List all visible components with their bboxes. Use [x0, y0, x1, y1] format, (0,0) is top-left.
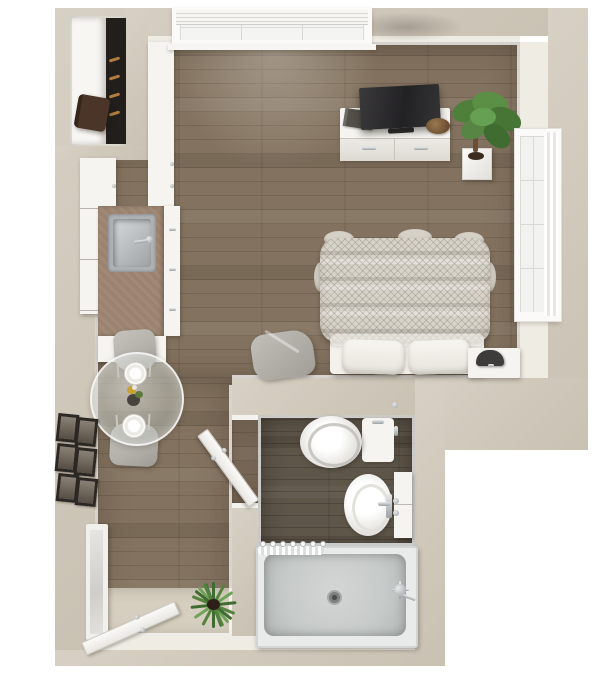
mirror-glass: [90, 530, 103, 634]
lamp-base: [488, 364, 494, 367]
curtain-ring: [280, 541, 286, 547]
drawer-handle: [414, 147, 428, 150]
bathroom-door-jamb: [232, 415, 258, 420]
pillow: [407, 339, 470, 375]
drawer-seam: [394, 138, 395, 160]
plant-soil: [468, 152, 484, 160]
wall-art-frame: [75, 417, 99, 447]
north-window-blinds: [176, 10, 368, 25]
curtain-ring: [270, 541, 276, 547]
curtain-ring: [290, 541, 296, 547]
shower-curtain-bunched: [258, 546, 324, 555]
north-window-sill: [168, 44, 376, 50]
curtain-ring: [310, 541, 316, 547]
base-cabinet-front: [164, 206, 180, 336]
east-window-glass: [520, 136, 546, 312]
drawer-handle: [169, 268, 176, 271]
bathroom-west-wall: [232, 508, 258, 636]
bathroom-east-wall: [415, 378, 445, 666]
gray-lounge-pouf: [249, 328, 317, 382]
bathroom-door-jamb: [232, 503, 258, 508]
curtain-ring: [320, 541, 326, 547]
cabinet-knob: [170, 162, 174, 166]
cabinet-knob: [112, 184, 116, 188]
floorplan-render: [0, 0, 600, 683]
faucet-handle: [393, 510, 399, 516]
decor-bowl: [426, 118, 450, 134]
towel-hook: [392, 402, 398, 408]
south-wall: [55, 650, 445, 666]
bathroom-north-wall: [232, 378, 415, 415]
plant-leaf: [470, 108, 496, 126]
wall-art-frame: [74, 447, 98, 477]
drawer-handle: [169, 228, 176, 231]
knit-blanket: [320, 238, 490, 342]
toilet-tank: [362, 418, 394, 462]
drawer-handle: [169, 308, 176, 311]
pillow: [341, 339, 404, 375]
closet-partition-wall: [126, 8, 148, 160]
toilet-flush-button: [372, 420, 384, 424]
sink-faucet-spout: [378, 502, 390, 506]
cabinet-knob: [170, 184, 174, 188]
kitchen-sink-bowl: [113, 219, 151, 267]
drawer-handle: [362, 147, 376, 150]
toilet-supply-line: [394, 426, 398, 436]
sink-faucet: [386, 494, 392, 518]
curtain-ring: [300, 541, 306, 547]
slim-storage-cabinet: [394, 472, 412, 538]
place-setting-plate: [124, 362, 147, 385]
toilet-seat: [308, 423, 360, 467]
wall-art-frame: [75, 477, 99, 507]
east-window-curtain: [544, 132, 558, 316]
curtain-ring: [260, 541, 266, 547]
sink-basin: [352, 484, 390, 532]
centerpiece-flower: [132, 385, 137, 390]
centerpiece-greenery: [135, 391, 143, 398]
hanging-clothes: [106, 18, 126, 144]
place-setting-plate: [122, 414, 146, 438]
faucet-handle: [393, 498, 399, 504]
shower-drain: [327, 590, 342, 605]
floor-plant-center: [207, 599, 220, 610]
pantry-cabinet: [148, 42, 174, 206]
tv-console-drawers: [340, 138, 450, 161]
duffel-bag: [73, 93, 110, 132]
